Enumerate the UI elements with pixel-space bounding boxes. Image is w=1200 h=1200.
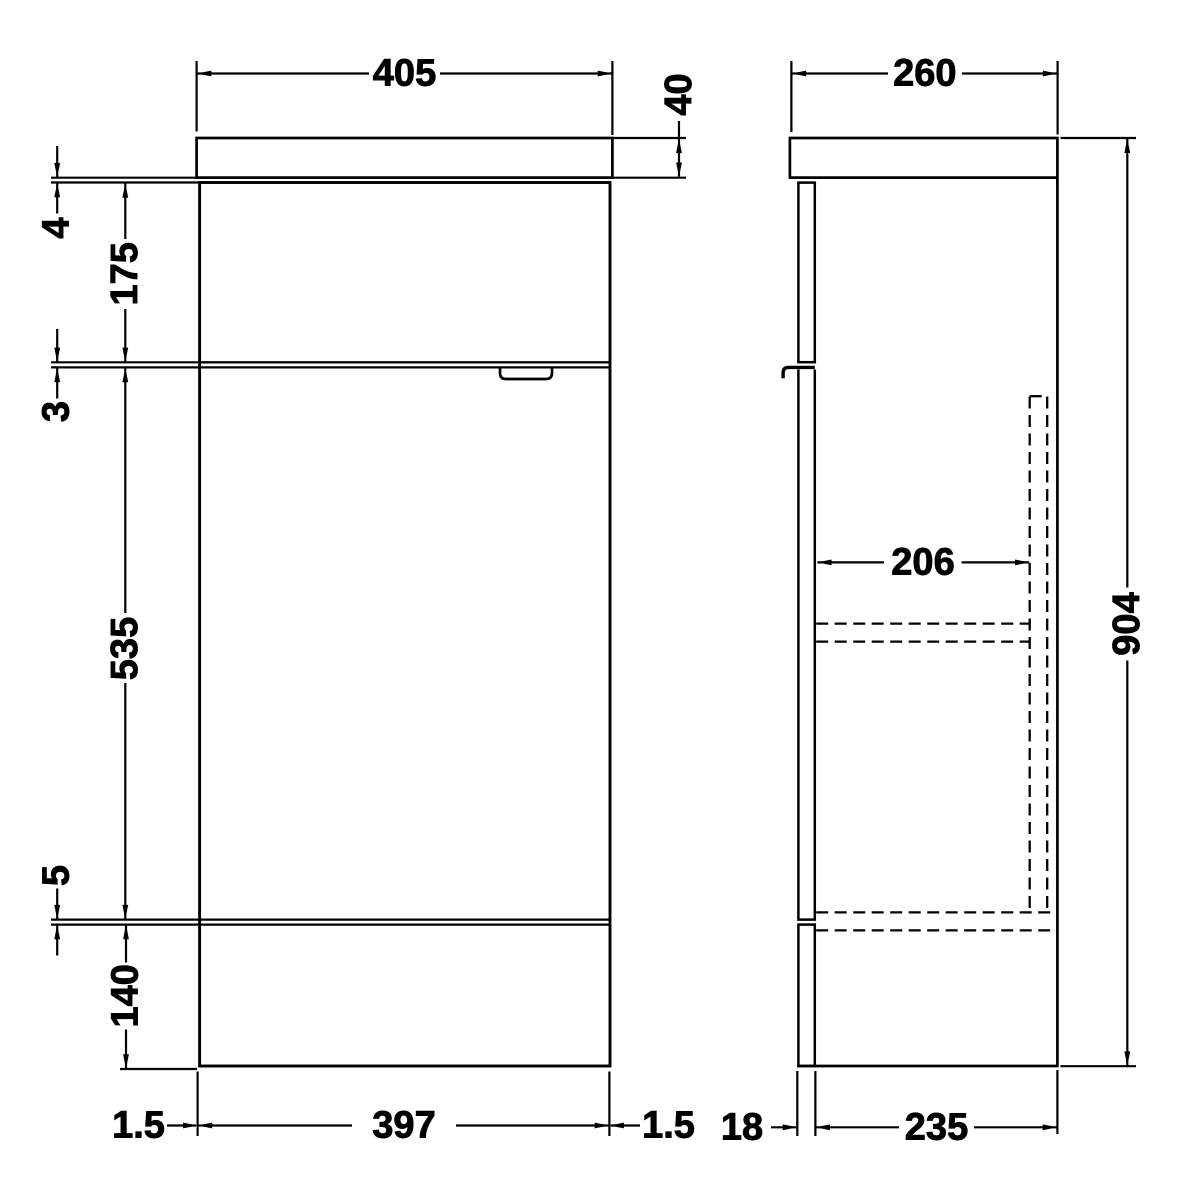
svg-text:206: 206 <box>891 541 954 583</box>
svg-text:405: 405 <box>373 53 436 95</box>
svg-text:1.5: 1.5 <box>112 1105 165 1147</box>
svg-text:1.5: 1.5 <box>642 1105 695 1147</box>
svg-text:235: 235 <box>905 1106 968 1148</box>
svg-text:904: 904 <box>1106 592 1148 655</box>
svg-text:4: 4 <box>36 217 78 238</box>
svg-text:18: 18 <box>721 1106 763 1148</box>
svg-text:535: 535 <box>104 617 146 680</box>
svg-text:3: 3 <box>36 401 78 422</box>
svg-text:397: 397 <box>372 1105 435 1147</box>
svg-text:5: 5 <box>36 865 78 886</box>
svg-text:175: 175 <box>104 242 146 305</box>
svg-text:40: 40 <box>658 73 700 115</box>
svg-text:260: 260 <box>893 53 956 95</box>
svg-text:140: 140 <box>105 964 147 1027</box>
